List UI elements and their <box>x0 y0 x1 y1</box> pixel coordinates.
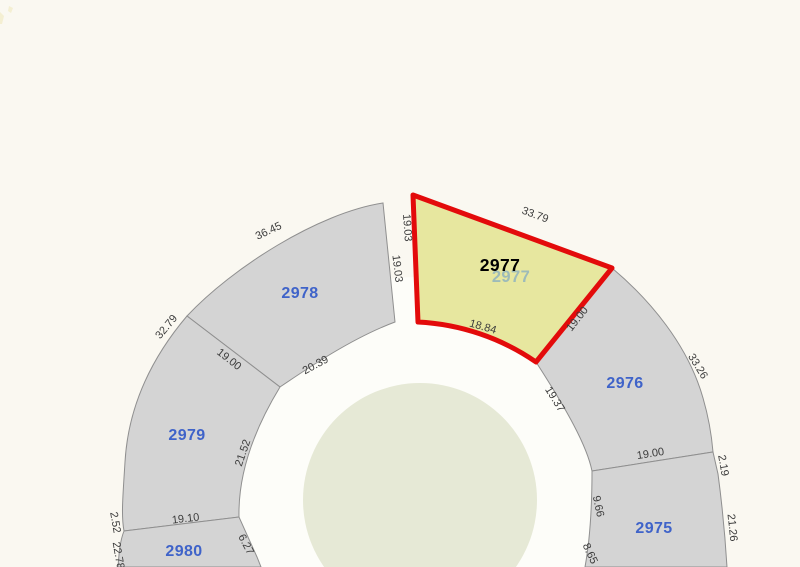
parcel-map-canvas[interactable]: 36.4519.0319.0020.39297832.7921.5219.102… <box>0 0 800 567</box>
parcel-label-2980: 2980 <box>165 543 202 560</box>
parcel-label-2976: 2976 <box>606 375 643 392</box>
parcel-label-2979: 2979 <box>168 427 205 444</box>
parcel-label-2978: 2978 <box>281 285 318 302</box>
dimension-label-2977: 19.03 <box>400 214 414 242</box>
parcel-label-2975: 2975 <box>635 520 672 537</box>
selected-parcel-label-main: 2977 <box>480 255 521 275</box>
parcel-2975[interactable] <box>585 452 727 567</box>
